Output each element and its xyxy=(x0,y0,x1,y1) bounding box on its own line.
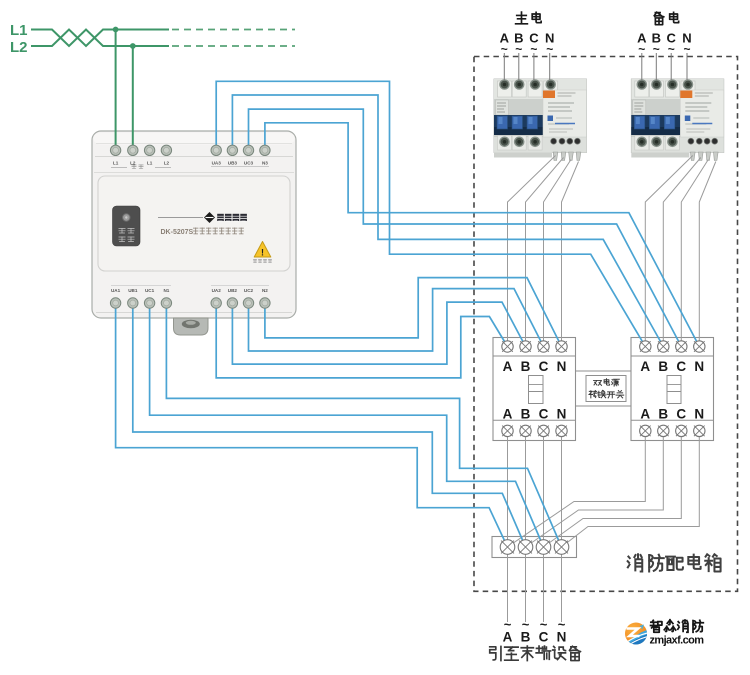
svg-text:N2: N2 xyxy=(262,288,268,293)
svg-text:!: ! xyxy=(261,248,264,258)
svg-text:A: A xyxy=(640,407,650,422)
svg-text:UB3: UB3 xyxy=(228,161,238,166)
svg-text:B: B xyxy=(658,407,668,422)
svg-text:~: ~ xyxy=(683,42,690,56)
svg-text:L1: L1 xyxy=(147,161,153,166)
svg-text:B: B xyxy=(658,359,668,374)
svg-text:C: C xyxy=(539,359,549,374)
svg-text:L1: L1 xyxy=(10,22,28,39)
svg-text:UA3: UA3 xyxy=(212,161,222,166)
svg-text:L2: L2 xyxy=(10,39,28,56)
svg-text:UB1: UB1 xyxy=(128,288,138,293)
svg-text:UC2: UC2 xyxy=(244,288,254,293)
svg-text:~: ~ xyxy=(546,42,553,56)
svg-text:B: B xyxy=(521,630,531,645)
svg-text:~: ~ xyxy=(515,42,522,56)
svg-text:UC3: UC3 xyxy=(244,161,254,166)
svg-text:A: A xyxy=(503,630,513,645)
svg-text:~: ~ xyxy=(530,42,537,56)
svg-text:N: N xyxy=(694,407,704,422)
svg-text:B: B xyxy=(521,359,531,374)
svg-text:UA2: UA2 xyxy=(212,288,222,293)
svg-text:C: C xyxy=(676,359,686,374)
svg-text:DK-5207S: DK-5207S xyxy=(161,229,194,236)
svg-text:N: N xyxy=(557,407,567,422)
svg-text:A: A xyxy=(503,359,513,374)
svg-text:N3: N3 xyxy=(262,161,268,166)
svg-text:C: C xyxy=(676,407,686,422)
svg-text:~: ~ xyxy=(501,42,508,56)
svg-text:~: ~ xyxy=(638,42,645,56)
svg-text:N: N xyxy=(557,630,567,645)
svg-text:N: N xyxy=(557,359,567,374)
svg-text:UA1: UA1 xyxy=(111,288,121,293)
svg-text:L2: L2 xyxy=(164,161,170,166)
svg-text:N: N xyxy=(694,359,704,374)
svg-text:zmjaxf.com: zmjaxf.com xyxy=(650,635,705,647)
svg-text:~: ~ xyxy=(653,42,660,56)
svg-text:N1: N1 xyxy=(163,288,169,293)
svg-text:C: C xyxy=(539,630,549,645)
svg-text:UB2: UB2 xyxy=(228,288,238,293)
svg-text:A: A xyxy=(640,359,650,374)
svg-text:C: C xyxy=(539,407,549,422)
svg-text:UC1: UC1 xyxy=(145,288,155,293)
svg-text:L1: L1 xyxy=(113,161,119,166)
svg-text:B: B xyxy=(521,407,531,422)
svg-text:A: A xyxy=(503,407,513,422)
svg-text:~: ~ xyxy=(668,42,675,56)
